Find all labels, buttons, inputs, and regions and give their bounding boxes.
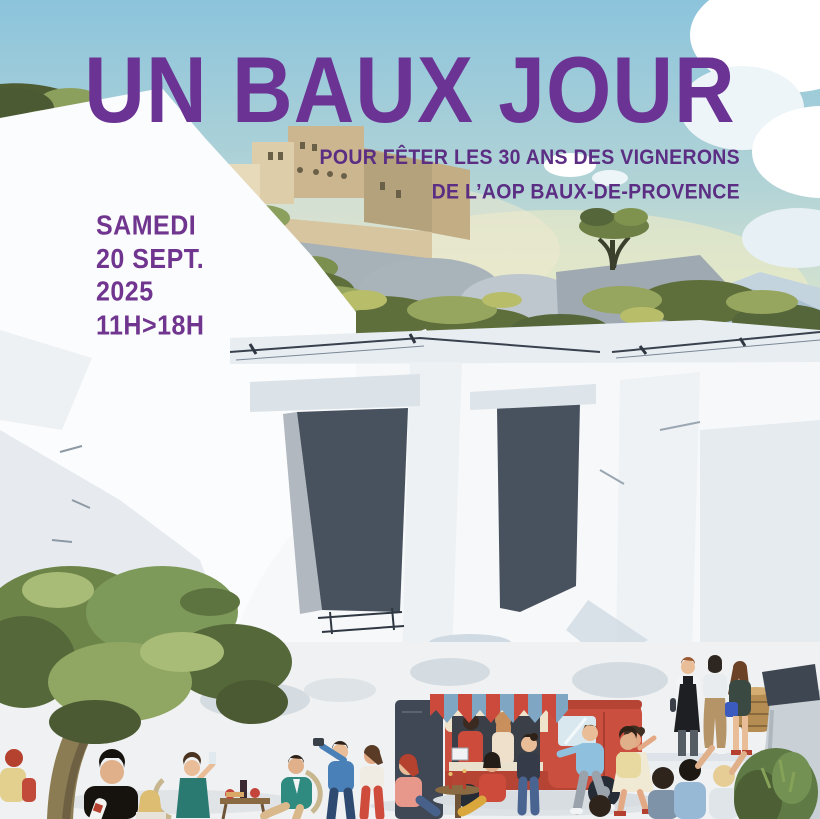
- subtitle-line-2: DE L’AOP BAUX-DE-PROVENCE: [320, 175, 740, 210]
- subtitle-line-1: POUR FÊTER LES 30 ANS DES VIGNERONS: [320, 140, 740, 175]
- date-hours: 11H>18H: [96, 309, 204, 342]
- event-date: SAMEDI 20 SEPT. 2025 11H>18H: [96, 210, 204, 342]
- date-date: 20 SEPT.: [96, 243, 204, 276]
- date-day: SAMEDI: [96, 210, 204, 243]
- poster-subtitle: POUR FÊTER LES 30 ANS DES VIGNERONS DE L…: [320, 140, 740, 209]
- poster: UN BAUX JOUR POUR FÊTER LES 30 ANS DES V…: [0, 0, 820, 819]
- poster-title: UN BAUX JOUR: [84, 36, 735, 145]
- date-year: 2025: [96, 276, 204, 309]
